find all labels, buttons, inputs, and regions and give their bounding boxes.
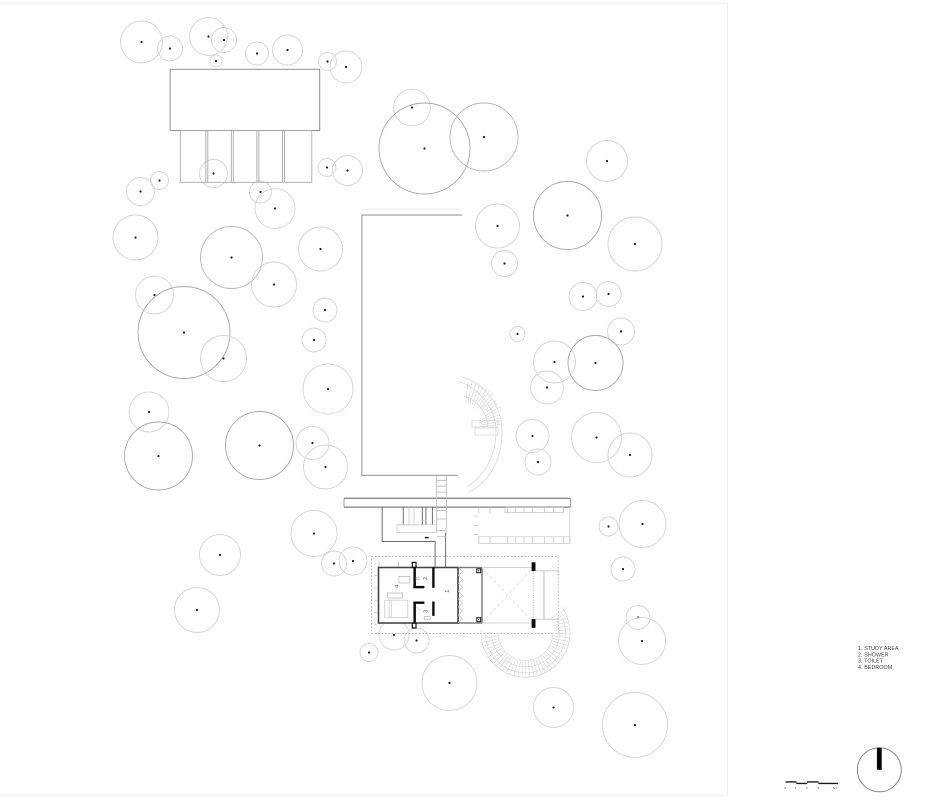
svg-text:1: 1 — [445, 590, 451, 593]
svg-text:4: 4 — [395, 585, 401, 588]
svg-text:3. TOILET: 3. TOILET — [858, 659, 884, 665]
svg-text:3: 3 — [424, 610, 430, 613]
svg-text:1. STUDY AREA: 1. STUDY AREA — [858, 646, 899, 652]
svg-text:2. SHOWER: 2. SHOWER — [858, 652, 889, 658]
svg-text:5m: 5m — [833, 786, 838, 790]
svg-text:2: 2 — [423, 577, 429, 580]
svg-text:4. BEDROOM: 4. BEDROOM — [858, 665, 892, 671]
